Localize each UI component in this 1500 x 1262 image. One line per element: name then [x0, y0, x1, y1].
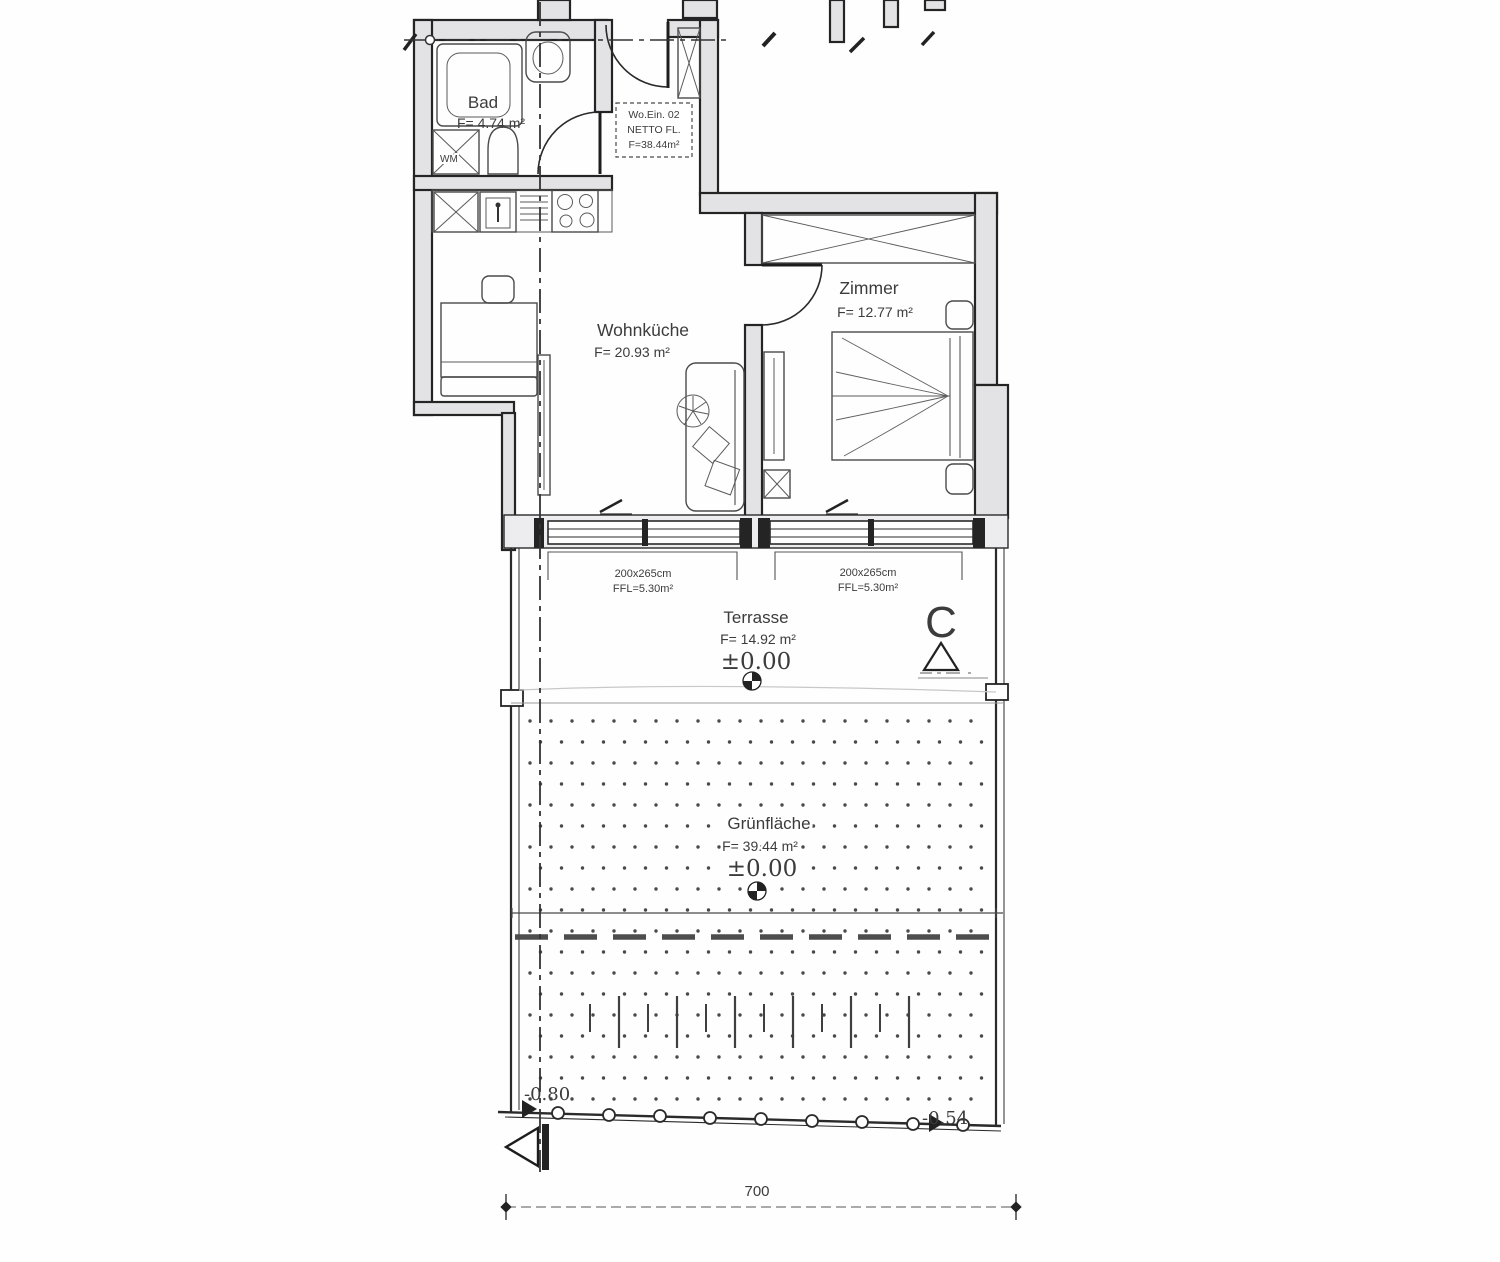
terrasse-label: Terrasse — [723, 608, 788, 627]
floor-plan-svg: WM — [0, 0, 1500, 1262]
washing-machine: WM — [433, 130, 479, 174]
level-bottom-right: -0.54 — [922, 1108, 968, 1129]
stove — [552, 190, 598, 232]
level-marker-terrasse — [743, 672, 761, 690]
dining-table — [441, 303, 537, 377]
window-left-area: FFL=5.30m² — [613, 583, 674, 595]
gruenflaeche-area: F= 39.44 m² — [722, 838, 798, 854]
bedroom-furniture — [762, 215, 975, 514]
zimmer-area: F= 12.77 m² — [837, 304, 913, 320]
chair — [482, 276, 514, 303]
toilet — [488, 127, 518, 174]
section-c-triangle — [924, 643, 958, 670]
living-area — [600, 363, 744, 514]
kitchen-sink — [480, 192, 516, 232]
window-left-size: 200x265cm — [615, 568, 672, 580]
floor-plan-page: WM — [0, 0, 1500, 1262]
nightstand — [946, 301, 973, 329]
shower — [437, 44, 522, 126]
threshold-mark-zimmer — [826, 500, 858, 514]
wohnkueche-label: Wohnküche — [597, 320, 689, 340]
unit-box-line1: Wo.Ein. 02 — [628, 109, 679, 121]
kitchen — [432, 190, 612, 232]
level-bottom-left: -0.80 — [524, 1084, 570, 1105]
window-annotations: 200x265cm FFL=5.30m² 200x265cm FFL=5.30m… — [548, 552, 962, 595]
pillow — [693, 427, 730, 464]
terrasse-level: ±0.00 — [721, 649, 791, 675]
unit-info-box: Wo.Ein. 02 NETTO FL. F=38.44m² — [616, 103, 692, 157]
window-band — [504, 515, 1008, 548]
floor-box — [764, 470, 790, 498]
double-bed — [832, 332, 973, 460]
washing-machine-label: WM — [440, 154, 458, 165]
bathroom-door — [538, 112, 600, 174]
radiator-zimmer — [764, 352, 784, 460]
dimension-value: 700 — [744, 1183, 769, 1200]
wohnkueche-area: F= 20.93 m² — [594, 344, 670, 360]
drainer — [520, 196, 548, 220]
fridge — [434, 192, 478, 232]
section-arrow-bottom — [506, 1124, 549, 1170]
gruenflaeche-level: ±0.00 — [727, 856, 797, 882]
green-area-dots — [526, 710, 990, 1108]
nightstand — [946, 464, 973, 494]
window-right-size: 200x265cm — [840, 567, 897, 579]
dimension-line: 700 — [500, 1183, 1021, 1220]
zimmer-label: Zimmer — [839, 278, 898, 298]
level-marker-gruenflaeche — [748, 882, 766, 900]
bad-label: Bad — [468, 93, 498, 112]
entrance-door — [606, 22, 668, 88]
terrace-window-left — [548, 519, 740, 546]
bad-area: F= 4.74 m² — [457, 115, 525, 131]
bedroom-door — [762, 265, 822, 325]
bathroom-fixtures: WM — [433, 32, 600, 174]
dining-area — [441, 276, 550, 495]
blanket-curves — [836, 338, 948, 456]
section-marker-c: C — [918, 598, 988, 678]
unit-box-line3: F=38.44m² — [628, 139, 680, 151]
window-right-area: FFL=5.30m² — [838, 582, 899, 594]
green-area — [498, 710, 1003, 1132]
walls — [404, 0, 1008, 550]
terrasse-area: F= 14.92 m² — [720, 631, 796, 647]
bench — [441, 377, 537, 396]
unit-box-line2: NETTO FL. — [627, 124, 680, 136]
plant — [677, 395, 709, 427]
gruenflaeche-label: Grünfläche — [727, 814, 810, 833]
section-c-letter: C — [925, 598, 957, 647]
terrace-window-right — [770, 519, 973, 546]
wardrobe — [762, 215, 975, 263]
threshold-mark-wohnkueche — [600, 500, 632, 514]
